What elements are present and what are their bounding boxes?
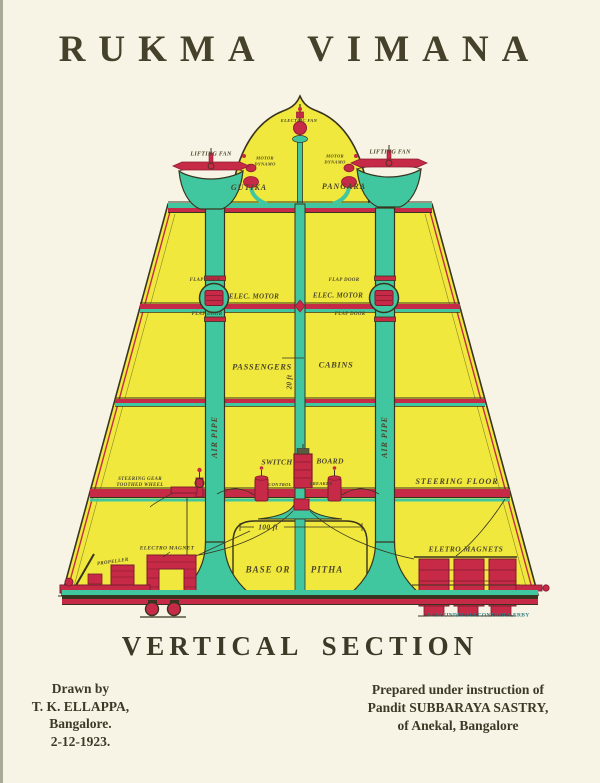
label-motor-dynamo-left: MOTOR DYNAMO (254, 155, 275, 166)
wheel-icon (168, 603, 181, 616)
label-flap-door-tl: FLAP DOOR (190, 278, 221, 284)
label-board: BOARD (316, 456, 343, 465)
label-air-pipe-right: AIR PIPE (380, 416, 390, 458)
scanned-page: RUKMA VIMANA (0, 0, 600, 783)
base-line (62, 590, 538, 605)
label-pangara: PANGARA (322, 182, 366, 192)
label-breaker: BREAKER (309, 481, 332, 487)
motor-dynamo-right-icon (344, 164, 354, 172)
label-100ft: 100 ft (258, 522, 278, 531)
label-base-or: BASE OR (246, 564, 291, 575)
credit-author: T. K. ELLAPPA, (8, 698, 153, 716)
label-elec-motor-left: ELEC. MOTOR (229, 293, 279, 302)
credits-left: Drawn by T. K. ELLAPPA, Bangalore. 2-12-… (8, 680, 153, 750)
credit-prepared: Prepared under instruction of (322, 681, 594, 699)
credits-right: Prepared under instruction of Pandit SUB… (322, 681, 594, 735)
label-gutika: GUTIKA (231, 183, 267, 193)
credit-pandit: Pandit SUBBARAYA SASTRY, (322, 699, 594, 717)
section-caption: VERTICAL SECTION (0, 631, 600, 662)
label-motor-dynamo-right: MOTOR DYNAMO (324, 153, 345, 164)
label-cabins: CABINS (319, 360, 354, 371)
label-control: CONTROL (268, 482, 291, 488)
credit-city: Bangalore. (8, 715, 153, 733)
wheel-icon (146, 603, 159, 616)
label-air-pipe-left: AIR PIPE (210, 416, 220, 458)
label-20ft: 20 ft (286, 375, 295, 390)
label-steering-floor: STEERING FLOOR (415, 477, 498, 487)
label-lifting-fan-right: LIFTING FAN (369, 149, 410, 157)
label-switch: SWITCH (262, 457, 293, 466)
control-breaker-left-icon (255, 478, 268, 501)
label-passengers: PASSENGERS (232, 362, 292, 373)
label-electric-fan: ELECTRIC FAN (281, 118, 318, 124)
label-pitha: PITHA (311, 564, 344, 575)
credit-drawn-by: Drawn by (8, 680, 153, 698)
label-eletro-magnets: ELETRO MAGNETS (429, 544, 504, 553)
label-steering-gear: STEERING GEAR TOOTHED WHEEL (116, 477, 163, 490)
credit-date: 2-12-1923. (8, 733, 153, 751)
label-flap-door-br: FLAP DOOR (335, 312, 366, 318)
label-flap-door-bl: FLAP DOOR (192, 312, 223, 318)
label-lifting-fan-left: LIFTING FAN (190, 151, 231, 159)
label-electro-magnet: ELECTRO MAGNET (140, 546, 194, 553)
credit-location: of Anekal, Bangalore (322, 717, 594, 735)
label-flap-door-tr: FLAP DOOR (329, 278, 360, 284)
label-elec-motor-right: ELEC. MOTOR (313, 292, 363, 301)
illegible-caption: ALAFFINDELAIA CONTROLS-ERBY (427, 613, 530, 620)
